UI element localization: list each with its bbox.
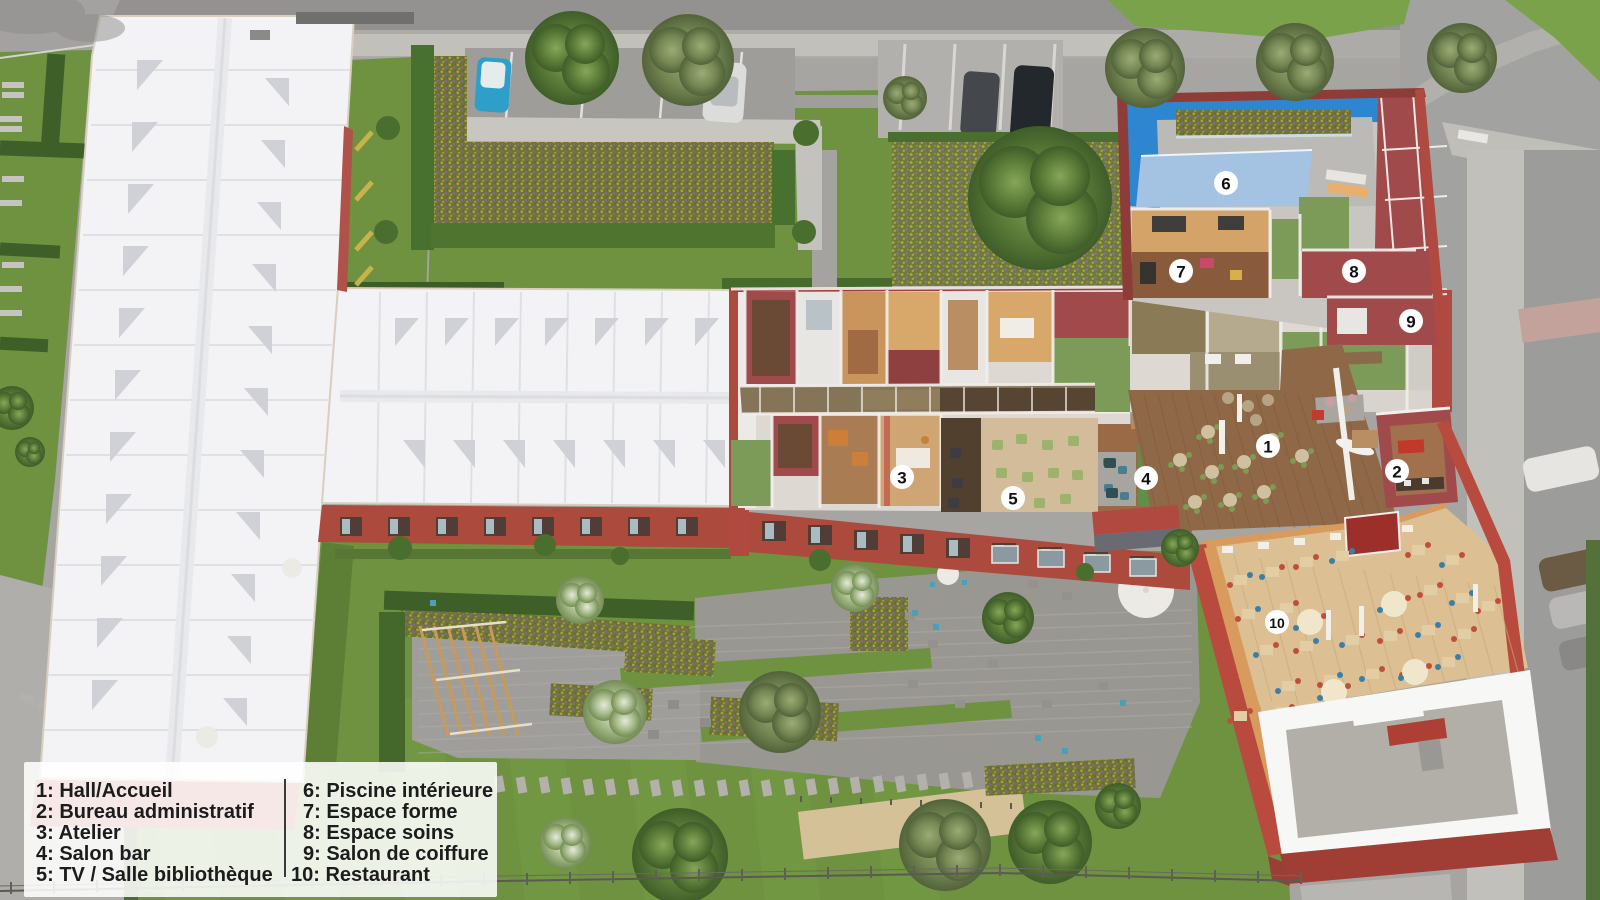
svg-text:9: Salon de coiffure: 9: Salon de coiffure (303, 843, 489, 865)
svg-text:1: 1 (1263, 438, 1272, 457)
svg-text:6: Piscine intérieure: 6: Piscine intérieure (303, 780, 493, 802)
svg-text:8: 8 (1349, 263, 1358, 282)
svg-text:3: 3 (897, 469, 906, 488)
svg-text:7: 7 (1176, 263, 1185, 282)
svg-text:9: 9 (1406, 313, 1415, 332)
svg-text:6: 6 (1221, 175, 1230, 194)
svg-text:3: Atelier: 3: Atelier (36, 822, 121, 844)
svg-text:5: 5 (1008, 490, 1017, 509)
svg-text:2: Bureau administratif: 2: Bureau administratif (36, 801, 254, 823)
svg-text:1: Hall/Accueil: 1: Hall/Accueil (36, 780, 173, 802)
svg-text:4: 4 (1141, 470, 1151, 489)
svg-text:8: Espace soins: 8: Espace soins (303, 822, 454, 844)
svg-text:4: Salon bar: 4: Salon bar (36, 843, 151, 865)
svg-text:2: 2 (1392, 463, 1401, 482)
svg-text:7: Espace forme: 7: Espace forme (303, 801, 458, 823)
svg-text:5: TV / Salle bibliothèque: 5: TV / Salle bibliothèque (36, 864, 273, 886)
svg-text:10: 10 (1269, 615, 1285, 631)
svg-text:10: Restaurant: 10: Restaurant (291, 864, 430, 886)
